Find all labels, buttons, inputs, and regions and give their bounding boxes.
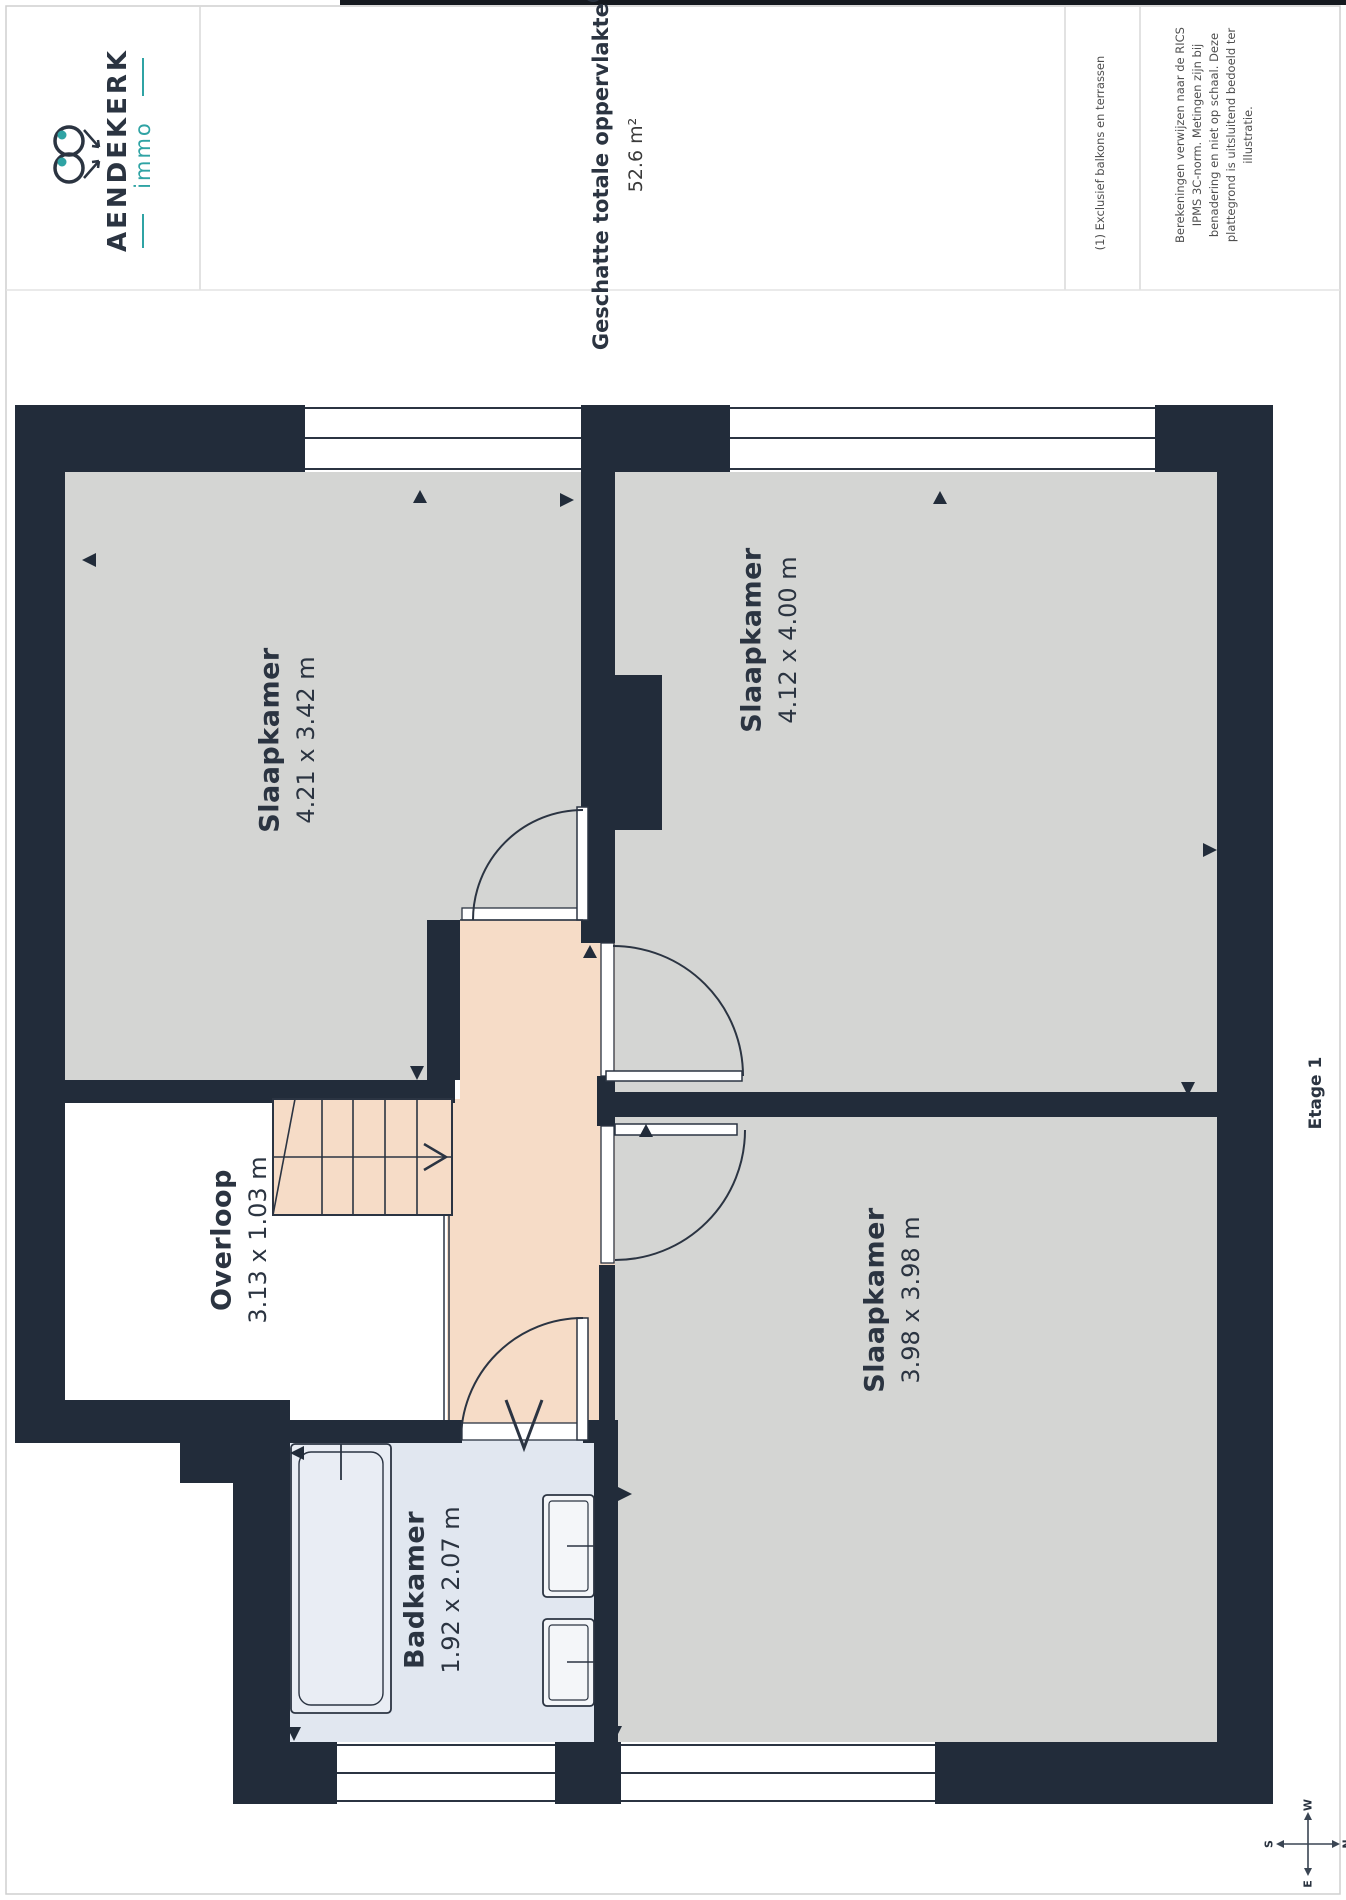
floorplan-page: AENDEKERK immo Geschatte totale oppervla…	[0, 0, 1346, 1900]
estimated-area-title-sup: (1)	[586, 0, 600, 3]
exterior-wall-right	[1217, 405, 1273, 1804]
compass-letter-s: S	[1263, 1840, 1276, 1848]
door-threshold	[462, 1423, 583, 1440]
logo-dot-bottom	[58, 158, 67, 167]
estimated-area-value: 52.6 m²	[625, 118, 647, 192]
room-dimensions-slaapkamer-2: 4.12 x 4.00 m	[774, 556, 802, 723]
floor-label: Etage 1	[1306, 1057, 1326, 1130]
door-threshold	[462, 908, 583, 920]
logo-sub: immo	[131, 121, 155, 189]
room-dimensions-slaapkamer-1: 4.21 x 3.42 m	[292, 656, 320, 823]
door-leaf	[577, 1318, 588, 1440]
room-label-slaapkamer-2: Slaapkamer	[737, 547, 768, 733]
room-label-slaapkamer-1: Slaapkamer	[255, 647, 286, 833]
bathtub	[291, 1444, 391, 1713]
logo-dot-top	[58, 131, 67, 140]
bathtub-outer	[291, 1444, 391, 1713]
compass-letter-e: E	[1302, 1880, 1315, 1888]
footnote-exclusions: (1) Exclusief balkons en terrassen	[1093, 56, 1107, 251]
estimated-area-title: Geschatte totale oppervlakte(1)	[586, 0, 613, 350]
floorplan-canvas: AENDEKERK immo Geschatte totale oppervla…	[0, 0, 1346, 1900]
wall-overloop-bottom	[15, 1400, 290, 1443]
door-leaf	[606, 1071, 742, 1081]
exterior-wall-left	[15, 405, 65, 1443]
wall-hall-west	[427, 920, 460, 1080]
sink-1	[543, 1495, 594, 1597]
wall-chimney-breast	[615, 675, 662, 830]
wall-badkamer-right	[594, 1443, 618, 1742]
footnote-disclaimer-line-2: IPMS 3C-norm. Metingen zijn bij	[1190, 44, 1204, 226]
room-floor-slaapkamer-3	[615, 1117, 1217, 1742]
window-bottom-left	[337, 1742, 555, 1804]
wall-between-right-rooms	[597, 1092, 1217, 1117]
estimated-area-title-text: Geschatte totale oppervlakte	[589, 3, 613, 350]
room-dimensions-slaapkamer-3: 3.98 x 3.98 m	[897, 1216, 925, 1383]
door-threshold	[601, 943, 614, 1076]
logo-brand: AENDEKERK	[103, 48, 133, 252]
wall-badkamer-top-left	[290, 1420, 462, 1443]
footnote-disclaimer-line-4: plattegrond is uitsluitend bedoeld ter	[1224, 28, 1238, 243]
sink-2	[543, 1619, 594, 1706]
room-label-overloop: Overloop	[207, 1169, 238, 1311]
room-dimensions-overloop: 3.13 x 1.03 m	[244, 1156, 272, 1323]
footnote-disclaimer-line-5: illustratie.	[1241, 106, 1255, 164]
room-label-badkamer: Badkamer	[400, 1511, 431, 1669]
room-dimensions-badkamer: 1.92 x 2.07 m	[437, 1506, 465, 1673]
door-threshold	[601, 1126, 614, 1263]
footnote-disclaimer-line-1: Berekeningen verwijzen naar de RICS	[1173, 27, 1187, 243]
room-floor-slaapkamer-2	[615, 472, 1217, 1092]
wall-badkamer-left	[233, 1443, 290, 1804]
window-top-right	[730, 405, 1155, 472]
header-top-bar	[340, 0, 1346, 5]
door-leaf	[615, 1124, 737, 1135]
door-leaf	[577, 807, 588, 920]
footnote-disclaimer-line-3: benadering en niet op schaal. Deze	[1207, 33, 1221, 237]
window-top-left	[305, 405, 581, 472]
window-bottom-right	[621, 1742, 935, 1804]
room-label-slaapkamer-3: Slaapkamer	[860, 1207, 891, 1393]
wall-hall-right	[599, 1265, 615, 1443]
compass-letter-w: W	[1302, 1799, 1315, 1811]
compass-letter-n: N	[1341, 1839, 1346, 1848]
